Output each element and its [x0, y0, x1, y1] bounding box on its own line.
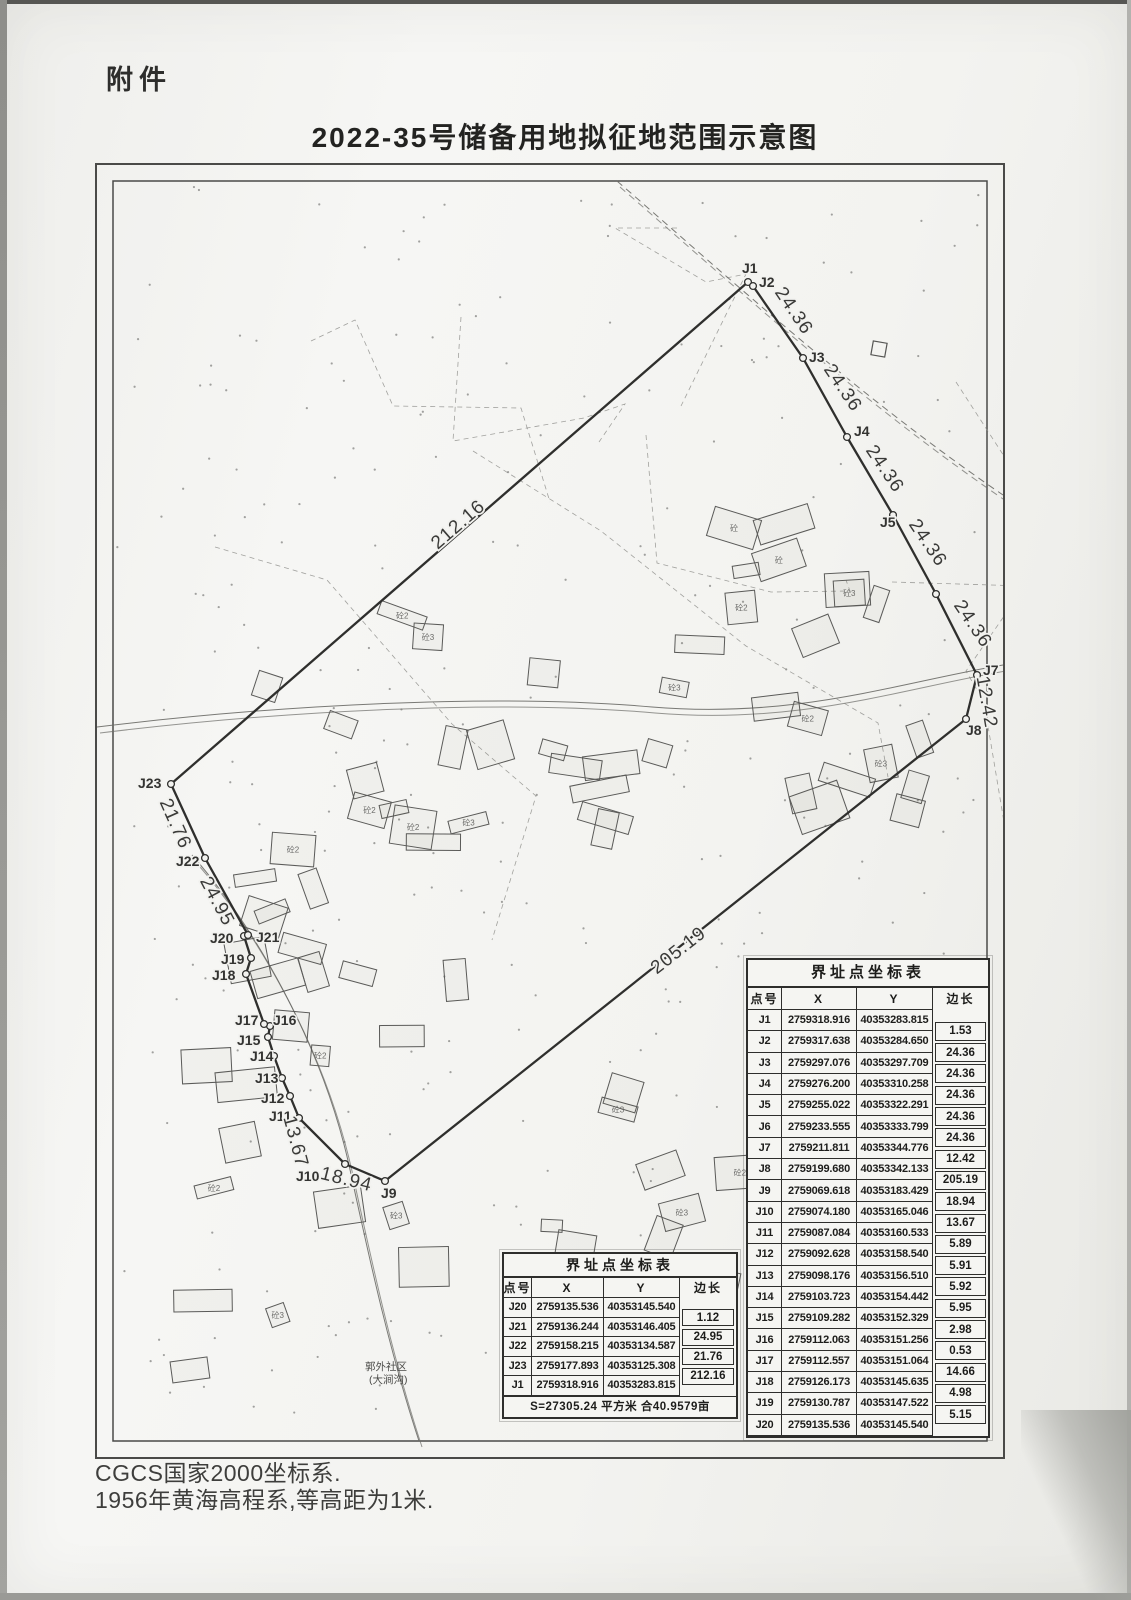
data-cell: 2759276.200 [782, 1074, 857, 1095]
svg-text:J3: J3 [809, 349, 825, 365]
coordinate-system-notes: CGCS国家2000坐标系. 1956年黄海高程系,等高距为1米. [95, 1460, 434, 1514]
data-cell: 40353145.635 [857, 1372, 933, 1393]
data-cell: J1 [748, 1010, 782, 1031]
side-length-cell: 24.36 [935, 1128, 986, 1147]
header-cell: Y [857, 988, 933, 1010]
svg-text:砼2: 砼2 [802, 714, 815, 724]
data-cell: 40353146.405 [604, 1318, 680, 1338]
svg-text:砼2: 砼2 [396, 610, 409, 620]
side-length-cell: 4.98 [935, 1384, 986, 1403]
svg-text:24.36: 24.36 [861, 441, 908, 496]
photo-edge-bottom [0, 1593, 1131, 1600]
data-cell: 40353154.442 [857, 1287, 933, 1308]
svg-text:J10: J10 [296, 1168, 320, 1184]
svg-text:砼3: 砼3 [422, 632, 435, 642]
data-cell: J11 [748, 1223, 782, 1244]
side-length-cell: 5.92 [935, 1277, 986, 1296]
side-length-cell: 24.36 [935, 1107, 986, 1126]
data-cell: 40353344.776 [857, 1138, 933, 1159]
data-cell: J15 [748, 1308, 782, 1329]
header-cell-side-length: 边长 [682, 1278, 734, 1297]
svg-text:砼2: 砼2 [734, 1167, 747, 1177]
data-cell: J4 [748, 1074, 782, 1095]
photo-edge-top [0, 0, 1131, 4]
data-cell: J7 [748, 1138, 782, 1159]
table-grid: 点号XYJ12759318.91640353283.815J22759317.6… [748, 988, 988, 1436]
data-cell: 40353125.308 [604, 1357, 680, 1377]
data-cell: 2759136.244 [532, 1318, 604, 1338]
data-cell: 2759087.084 [782, 1223, 857, 1244]
side-length-cell: 24.36 [935, 1064, 986, 1083]
svg-text:J1: J1 [742, 260, 758, 276]
side-length-cell: 2.98 [935, 1320, 986, 1339]
svg-text:J17: J17 [235, 1012, 259, 1028]
svg-text:砼3: 砼3 [668, 682, 681, 692]
area-note: S=27305.24 平方米 合40.9579亩 [504, 1396, 736, 1417]
svg-text:J18: J18 [212, 967, 236, 983]
data-cell: 2759317.638 [782, 1031, 857, 1052]
svg-text:(大涧沟): (大涧沟) [369, 1373, 408, 1386]
svg-text:砼3: 砼3 [272, 1310, 285, 1320]
svg-text:砼2: 砼2 [287, 845, 300, 855]
data-cell: 2759112.557 [782, 1351, 857, 1372]
side-length-cell: 14.66 [935, 1363, 986, 1382]
svg-text:212.16: 212.16 [427, 496, 489, 554]
data-cell: J10 [748, 1202, 782, 1223]
data-cell: J1 [504, 1376, 532, 1396]
side-length-cell: 205.19 [935, 1171, 986, 1190]
table-title: 界址点坐标表 [748, 960, 988, 988]
data-cell: J19 [748, 1393, 782, 1414]
side-length-cell: 1.53 [935, 1022, 986, 1041]
svg-text:J20: J20 [210, 930, 234, 946]
svg-text:J5: J5 [880, 514, 896, 530]
svg-text:砼3: 砼3 [612, 1105, 625, 1115]
data-cell: 2759126.173 [782, 1372, 857, 1393]
svg-text:J12: J12 [261, 1090, 285, 1106]
data-cell: J17 [748, 1351, 782, 1372]
data-cell: 40353283.815 [857, 1010, 933, 1031]
data-cell: 40353145.540 [857, 1415, 933, 1436]
data-cell: J9 [748, 1180, 782, 1201]
svg-text:砼2: 砼2 [407, 822, 420, 832]
data-cell: 40353183.429 [857, 1180, 933, 1201]
side-length-cell: 12.42 [935, 1150, 986, 1169]
svg-text:J19: J19 [221, 951, 245, 967]
data-cell: 2759135.536 [782, 1415, 857, 1436]
svg-text:24.36: 24.36 [904, 515, 951, 570]
data-cell: 2759255.022 [782, 1095, 857, 1116]
data-cell: 40353333.799 [857, 1116, 933, 1137]
data-cell: 2759103.723 [782, 1287, 857, 1308]
svg-text:J15: J15 [237, 1032, 261, 1048]
svg-text:24.36: 24.36 [949, 596, 996, 651]
side-length-cell: 212.16 [682, 1368, 734, 1385]
side-length-cell: 21.76 [682, 1348, 734, 1365]
side-length-cell: 0.53 [935, 1341, 986, 1360]
data-cell: 40353283.815 [604, 1376, 680, 1396]
svg-text:砼2: 砼2 [735, 603, 748, 613]
data-cell: J18 [748, 1372, 782, 1393]
svg-text:郭外社区: 郭外社区 [365, 1360, 407, 1373]
svg-text:J21: J21 [256, 929, 280, 945]
side-length-cell: 5.89 [935, 1235, 986, 1254]
data-cell: 40353342.133 [857, 1159, 933, 1180]
data-cell: J6 [748, 1116, 782, 1137]
header-cell: Y [604, 1278, 680, 1298]
svg-text:砼3: 砼3 [676, 1207, 689, 1217]
data-cell: 40353134.587 [604, 1337, 680, 1357]
table-title: 界址点坐标表 [504, 1254, 736, 1278]
header-cell: X [532, 1278, 604, 1298]
data-cell: 2759112.063 [782, 1329, 857, 1350]
boundary-table-main: 界址点坐标表 点号XYJ12759318.91640353283.815J227… [746, 958, 990, 1438]
data-cell: J16 [748, 1329, 782, 1350]
header-cell-side-length: 边长 [935, 988, 986, 1009]
data-cell: 2759233.555 [782, 1116, 857, 1137]
header-cell: 点号 [504, 1278, 532, 1298]
svg-text:J23: J23 [138, 775, 162, 791]
side-length-cell: 1.12 [682, 1309, 734, 1326]
data-cell: 2759074.180 [782, 1202, 857, 1223]
data-cell: 2759069.618 [782, 1180, 857, 1201]
data-cell: 40353152.329 [857, 1308, 933, 1329]
data-cell: J5 [748, 1095, 782, 1116]
data-cell: J14 [748, 1287, 782, 1308]
data-cell: J8 [748, 1159, 782, 1180]
data-cell: 40353147.522 [857, 1393, 933, 1414]
svg-text:砼2: 砼2 [208, 1183, 221, 1193]
svg-text:J2: J2 [759, 274, 775, 290]
data-cell: 2759318.916 [782, 1010, 857, 1031]
data-cell: 2759109.282 [782, 1308, 857, 1329]
data-cell: 2759318.916 [532, 1376, 604, 1396]
side-length-cell: 24.95 [682, 1329, 734, 1346]
header-cell: X [782, 988, 857, 1010]
data-cell: 40353158.540 [857, 1244, 933, 1265]
data-cell: J2 [748, 1031, 782, 1052]
data-cell: 2759135.536 [532, 1298, 604, 1318]
svg-text:砼: 砼 [775, 555, 783, 565]
svg-text:J14: J14 [250, 1048, 274, 1064]
data-cell: J21 [504, 1318, 532, 1338]
data-cell: J22 [504, 1337, 532, 1357]
svg-text:13.67: 13.67 [278, 1113, 312, 1169]
data-cell: 40353160.533 [857, 1223, 933, 1244]
svg-text:J22: J22 [176, 853, 200, 869]
data-cell: 40353310.258 [857, 1074, 933, 1095]
data-cell: 2759158.215 [532, 1337, 604, 1357]
header-cell: 点号 [748, 988, 782, 1010]
svg-text:砼3: 砼3 [390, 1211, 403, 1221]
data-cell: 2759098.176 [782, 1266, 857, 1287]
data-cell: 40353165.046 [857, 1202, 933, 1223]
side-length-cell: 5.91 [935, 1256, 986, 1275]
svg-text:J13: J13 [255, 1070, 279, 1086]
data-cell: 2759199.680 [782, 1159, 857, 1180]
svg-text:砼2: 砼2 [314, 1051, 327, 1061]
data-cell: 40353156.510 [857, 1266, 933, 1287]
note-line-2: 1956年黄海高程系,等高距为1米. [95, 1487, 434, 1514]
svg-text:砼: 砼 [730, 523, 738, 533]
photo-edge-right [1127, 0, 1131, 1600]
svg-text:砼3: 砼3 [875, 758, 888, 768]
attachment-label: 附件 [106, 58, 172, 97]
data-cell: J23 [504, 1357, 532, 1377]
svg-text:24.95: 24.95 [195, 873, 238, 929]
table-grid: 点号XYJ202759135.53640353145.540J212759136… [504, 1278, 736, 1417]
data-cell: 40353151.064 [857, 1351, 933, 1372]
side-length-cell: 5.95 [935, 1299, 986, 1318]
data-cell: 40353145.540 [604, 1298, 680, 1318]
data-cell: 2759297.076 [782, 1053, 857, 1074]
data-cell: 40353322.291 [857, 1095, 933, 1116]
svg-text:J9: J9 [381, 1185, 397, 1201]
svg-text:J4: J4 [854, 423, 870, 439]
svg-text:205.19: 205.19 [647, 923, 710, 979]
svg-text:J8: J8 [966, 722, 982, 738]
note-line-1: CGCS国家2000坐标系. [95, 1460, 434, 1487]
data-cell: J20 [504, 1298, 532, 1318]
svg-text:砼2: 砼2 [363, 805, 376, 815]
page-title: 2022-35号储备用地拟征地范围示意图 [160, 116, 970, 156]
svg-text:24.36: 24.36 [770, 283, 817, 338]
village-label: 郭外社区(大涧沟) [365, 1360, 408, 1386]
data-cell: J20 [748, 1415, 782, 1436]
side-length-cell: 24.36 [935, 1086, 986, 1105]
data-cell: 2759092.628 [782, 1244, 857, 1265]
boundary-table-inset: 界址点坐标表 点号XYJ202759135.53640353145.540J21… [502, 1252, 738, 1419]
data-cell: 40353284.650 [857, 1031, 933, 1052]
side-length-cell: 24.36 [935, 1043, 986, 1062]
side-length-cell: 13.67 [935, 1214, 986, 1233]
data-cell: J13 [748, 1266, 782, 1287]
data-cell: 40353151.256 [857, 1329, 933, 1350]
data-cell: 2759130.787 [782, 1393, 857, 1414]
data-cell: J12 [748, 1244, 782, 1265]
data-cell: 40353297.709 [857, 1053, 933, 1074]
side-length-cell: 18.94 [935, 1192, 986, 1211]
side-length-cell: 5.15 [935, 1405, 986, 1424]
data-cell: J3 [748, 1053, 782, 1074]
svg-text:砼3: 砼3 [462, 818, 475, 828]
svg-text:J16: J16 [273, 1012, 297, 1028]
data-cell: 2759211.811 [782, 1138, 857, 1159]
photo-corner-shadow [1021, 1410, 1131, 1600]
photo-edge-left [0, 0, 7, 1600]
data-cell: 2759177.893 [532, 1357, 604, 1377]
